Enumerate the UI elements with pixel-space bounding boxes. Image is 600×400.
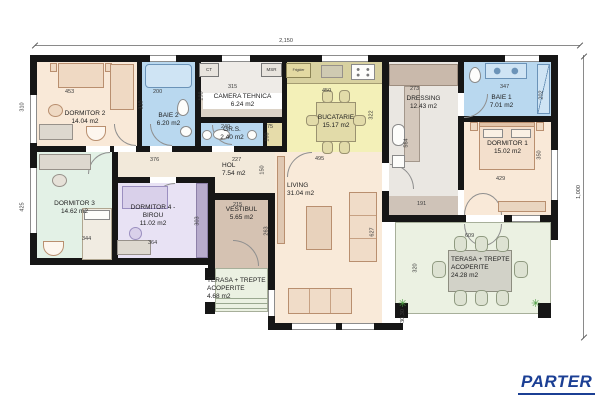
floor-plan: CT MSR Frigider ✳ ✳ [0,0,600,400]
room-area: 31.04 m2 [287,190,347,198]
window [512,215,540,222]
dim: 202 [539,90,545,99]
dim-overall-height: 1,000 [576,185,582,199]
plant-icon: ✳ [531,299,540,310]
dim: 315 [228,84,237,90]
window [30,168,37,233]
dim: 310 [20,102,26,111]
room-name: DORMITOR 2 [30,110,140,118]
dim: 347 [500,84,509,90]
dim: 429 [496,176,505,182]
dim: 100 [265,132,271,141]
room-name: BUCATARIE [297,114,375,122]
wall-segment [268,323,292,330]
bathtub [145,64,192,88]
window [292,323,336,330]
double-sink-vanity [485,63,527,79]
wall-segment [268,316,275,323]
label-baie-2: BAIE 2 6.20 m2 [142,112,195,128]
wall-segment [504,215,512,222]
toilet [469,67,481,83]
desk [39,124,73,140]
wall-segment [136,146,150,152]
wall-segment [112,177,150,183]
room-name: GR.S. [203,126,261,134]
window [322,55,368,62]
label-dressing: DRESSING 12.43 m2 [389,95,458,111]
window [268,290,275,316]
dim: 227 [232,157,241,163]
nightstand [536,122,544,131]
wall-segment [551,200,558,240]
dim: 240 [221,124,230,130]
room-area: 14.04 m2 [30,118,140,126]
chair [475,290,488,306]
label-terasa-mica: TERASA + TREPTE ACOPERITE 4.68 m2 [207,277,269,301]
dim-overall-width: 2,150 [268,38,304,44]
wall-segment [30,55,37,265]
room-area: 12.43 m2 [389,103,458,111]
wall-segment [172,146,212,152]
desk [39,154,91,170]
chair [52,174,67,187]
room-area: 14.62 m2 [37,208,112,216]
ct-unit: CT [199,63,219,77]
chair [496,236,509,252]
window [342,323,374,330]
dim: 322 [369,110,375,119]
room-area: 7.54 m2 [222,170,264,178]
label-baie-1: BAIE 1 7.01 m2 [464,94,539,110]
dim: 350 [537,150,543,159]
room-area: 6.20 m2 [142,120,195,128]
dim: 273 [410,86,419,92]
dim: 303 [195,216,201,225]
dim: 320 [413,263,419,272]
label-dormitor-3: DORMITOR 3 14.62 m2 [37,200,112,216]
window [150,55,176,62]
room-area: 7.01 m2 [464,102,539,110]
wall-segment [234,146,282,152]
dim: 376 [150,157,159,163]
room-area: 5.65 m2 [215,214,268,222]
room-name: TERASA + TREPTE ACOPERITE [451,256,511,272]
msr-unit: MSR [261,63,282,77]
label-terasa-mare: TERASA + TREPTE ACOPERITE 24.28 m2 [451,256,511,280]
dim: 495 [315,156,324,162]
nightstand [470,122,478,131]
dim: 310 [139,100,145,109]
room-name: BAIE 2 [142,112,195,120]
plan-title: PARTER [518,372,595,395]
room-name: HOL [222,162,264,170]
room-area: 24.28 m2 [451,272,511,280]
room-name: BAIE 1 [464,94,539,102]
wall-segment [268,193,275,290]
window [222,55,250,62]
dim-tick [581,53,587,59]
desk [117,240,151,255]
coffee-table [306,206,332,250]
label-bucatarie: BUCATARIE 15.17 m2 [297,114,375,130]
room-name: DORMITOR 1 [464,140,551,148]
room-area: 2.40 m2 [203,134,261,142]
dimension-line-right [583,55,584,338]
chair [496,290,509,306]
room-name: CAMERA TEHNICA [203,93,282,101]
dim: 564 [404,138,410,147]
dim: 344 [82,236,91,242]
dim: 450 [322,88,331,94]
wall-segment [551,62,558,150]
dim: 150 [260,165,266,174]
chair [475,236,488,252]
chair [339,90,350,103]
nightstand [50,63,57,72]
label-dormitor-4: DORMITOR 4 - BIROU 11.02 m2 [123,204,183,228]
room-name: DORMITOR 4 - BIROU [123,204,183,220]
chair [129,227,142,240]
label-dormitor-2: DORMITOR 2 14.04 m2 [30,110,140,126]
chair [339,141,350,154]
label-camera-tehnica: CAMERA TEHNICA 6.24 m2 [203,93,282,109]
dim: 200 [153,89,162,95]
room-area: 4.68 m2 [207,293,269,301]
room-name: LIVING [287,182,347,190]
dimension-line-top [35,45,580,46]
dim: 609 [465,233,474,239]
tv-cabinet [277,156,285,244]
fridge: Frigider [286,63,311,78]
dim-tick [581,334,587,340]
wall-segment [208,193,275,200]
room-name: DORMITOR 3 [37,200,112,208]
kitchen-sink [321,65,343,78]
wall-segment [30,146,86,152]
dim: 215 [233,202,242,208]
chair [454,290,467,306]
sink [392,155,405,168]
chair [514,261,528,278]
dressing-wardrobe-top [389,64,458,86]
label-living: LIVING 31.04 m2 [287,182,347,198]
dim: 425 [20,202,26,211]
wall-segment [382,62,389,163]
room-area: 6.24 m2 [203,101,282,109]
room-name: DRESSING [389,95,458,103]
dim: 364 [148,240,157,246]
bed [58,63,104,88]
dim: 75 [267,124,273,130]
wardrobe [110,64,134,110]
wall-segment [30,55,558,62]
dim: 198 [199,91,205,100]
wall-segment [374,323,403,330]
dim: 263 [264,226,270,235]
dim-tick [577,42,583,48]
chair [322,141,333,154]
room-area: 15.17 m2 [297,122,375,130]
window [505,55,539,62]
wall-segment [458,62,464,93]
label-vestibul: VESTIBUL 5.65 m2 [215,206,268,222]
dim: 627 [370,227,376,236]
pillow [511,129,531,138]
dresser [498,201,546,212]
window [551,150,558,200]
stove [351,64,375,80]
chair [432,261,446,278]
wall-segment [195,117,282,123]
post [205,302,215,314]
wall-segment [382,215,466,222]
label-hol: HOL 7.54 m2 [222,162,264,178]
label-gr-s: GR.S. 2.40 m2 [203,126,261,142]
room-name: TERASA + TREPTE ACOPERITE [207,277,269,293]
dim: 453 [65,89,74,95]
wall-segment [30,258,212,265]
room-hol-lower [212,177,275,193]
dim: 191 [417,201,426,207]
pillow [483,129,503,138]
dim: 30,30 [400,309,406,323]
sofa [288,288,352,314]
room-area: 11.02 m2 [123,220,183,228]
